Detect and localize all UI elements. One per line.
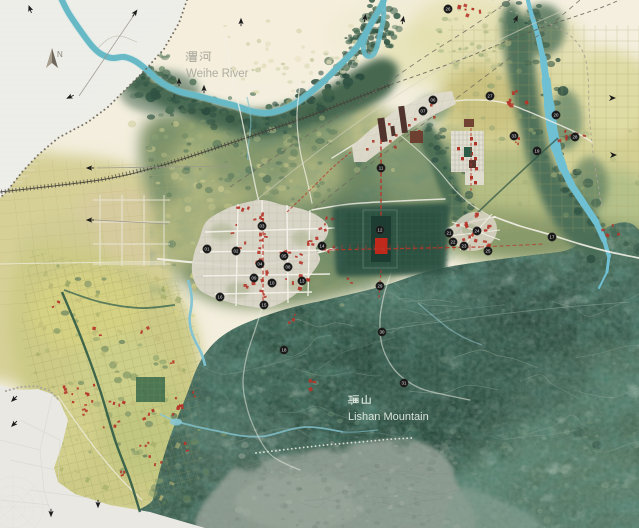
svg-text:07: 07 [421, 109, 426, 114]
svg-text:30: 30 [380, 330, 385, 335]
svg-text:19: 19 [535, 149, 540, 154]
svg-text:06: 06 [431, 98, 436, 103]
svg-text:15: 15 [262, 303, 267, 308]
svg-text:33: 33 [512, 134, 517, 139]
svg-text:27: 27 [488, 94, 493, 99]
svg-text:N: N [57, 50, 63, 59]
svg-text:16: 16 [218, 295, 223, 300]
svg-text:28: 28 [573, 135, 578, 140]
svg-text:25: 25 [486, 249, 491, 254]
svg-text:10: 10 [270, 281, 275, 286]
svg-text:12: 12 [378, 228, 383, 233]
svg-text:23: 23 [462, 244, 467, 249]
svg-text:04: 04 [258, 262, 263, 267]
svg-text:11: 11 [379, 166, 384, 171]
svg-text:05: 05 [282, 254, 287, 259]
svg-text:03: 03 [260, 224, 265, 229]
svg-text:21: 21 [447, 231, 452, 236]
svg-text:Lishan Mountain: Lishan Mountain [348, 411, 429, 423]
svg-text:24: 24 [475, 229, 480, 234]
svg-text:31: 31 [402, 381, 407, 386]
svg-text:Weihe River: Weihe River [186, 68, 249, 80]
svg-text:26: 26 [446, 7, 451, 12]
svg-text:01: 01 [205, 247, 210, 252]
svg-text:14: 14 [320, 244, 325, 249]
svg-text:09: 09 [252, 276, 257, 281]
svg-text:08: 08 [286, 265, 291, 270]
svg-text:02: 02 [234, 249, 239, 254]
svg-text:20: 20 [554, 113, 559, 118]
svg-text:29: 29 [378, 284, 383, 289]
svg-text:17: 17 [550, 235, 555, 240]
svg-text:13: 13 [300, 279, 305, 284]
svg-text:22: 22 [451, 240, 456, 245]
svg-text:18: 18 [282, 348, 287, 353]
